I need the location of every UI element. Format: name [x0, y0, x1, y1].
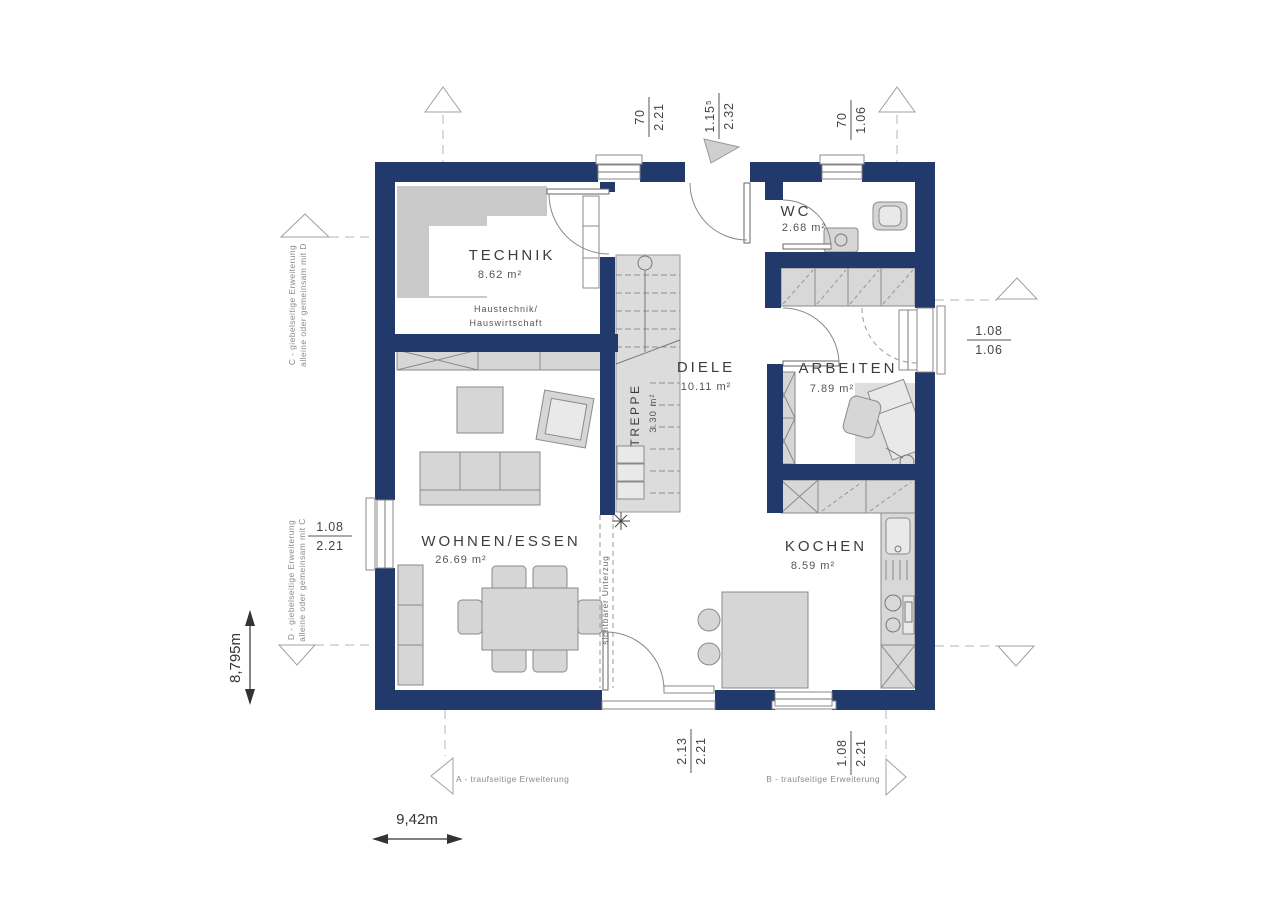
kitchen-island [698, 592, 808, 688]
armchair [536, 390, 594, 448]
room-label-diele: DIELE [677, 359, 735, 376]
extension-label-c-line1: C - giebelseitige Erweiterung [287, 245, 297, 365]
dining-chair [458, 600, 482, 634]
room-label-technik: TECHNIK [469, 247, 556, 264]
dimension-window-kochen: 1.08 2.21 [835, 731, 868, 775]
extension-label-a: A - traufseitige Erweiterung [456, 774, 569, 784]
svg-text:2.21: 2.21 [652, 103, 666, 131]
bar-stool [698, 643, 720, 665]
room-label-treppe: TREPPE [628, 383, 642, 446]
marker-triangle-top-right [879, 87, 915, 112]
svg-text:70: 70 [835, 112, 849, 128]
room-area-wc: 2.68 m² [782, 222, 826, 234]
kitchen-sink [886, 518, 910, 554]
marker-triangle-left-upper [281, 214, 329, 237]
dimension-window-technik: 70 2.21 [633, 97, 666, 137]
room-area-diele: 10.11 m² [681, 381, 732, 393]
staircase [616, 255, 680, 512]
dining-chair [533, 648, 567, 672]
terrace-door [602, 632, 715, 709]
shelf-cabinet [398, 565, 423, 685]
dining-chair [578, 600, 602, 634]
technik-shaded-zone [397, 186, 587, 298]
technik-cabinet [583, 196, 599, 288]
scale-width: 9,42m [372, 811, 463, 844]
room-label-arbeiten: ARBEITEN [798, 360, 897, 377]
extension-label-c-line2: alleine oder gemeinsam mit D [298, 243, 308, 367]
room-label-kochen: KOCHEN [785, 538, 867, 555]
window-technik [596, 155, 642, 179]
svg-text:1.08: 1.08 [835, 739, 849, 767]
svg-text:2.21: 2.21 [854, 739, 868, 767]
svg-text:1.06: 1.06 [975, 343, 1003, 357]
marker-triangle-left-lower [279, 645, 315, 665]
svg-text:1.08: 1.08 [316, 520, 344, 534]
svg-text:2.21: 2.21 [694, 737, 708, 765]
room-area-technik: 8.62 m² [478, 269, 522, 281]
svg-text:1.08: 1.08 [975, 324, 1003, 338]
beam-note-label: sichtbarer Unterzug [600, 555, 610, 644]
technik-note-line2: Hauswirtschaft [469, 318, 542, 328]
svg-text:1.15⁵: 1.15⁵ [703, 99, 717, 133]
marker-triangle-bottom-a [431, 758, 453, 794]
extension-label-d-line2: alleine oder gemeinsam mit C [297, 518, 307, 642]
dining-chair [492, 648, 526, 672]
scale-width-label: 9,42m [396, 811, 438, 828]
scale-height: 8,795m [227, 610, 255, 705]
window-arbeiten-right [899, 306, 945, 374]
dining-set [458, 566, 602, 672]
svg-text:2.13: 2.13 [675, 737, 689, 765]
arbeiten-door [783, 308, 917, 366]
marker-triangle-top-left [425, 87, 461, 112]
window-wc [820, 155, 864, 179]
bar-stool [698, 609, 720, 631]
room-area-treppe: 3.30 m² [648, 393, 659, 432]
svg-text:2.32: 2.32 [722, 102, 736, 130]
room-label-wc: WC [781, 203, 812, 220]
marker-triangle-right-lower [998, 646, 1034, 666]
extension-label-b: B - traufseitige Erweiterung [766, 774, 880, 784]
marker-triangle-right-upper [997, 278, 1037, 299]
wc-fixtures [824, 202, 907, 252]
room-area-kochen: 8.59 m² [791, 560, 835, 572]
living-room-furniture [397, 350, 603, 685]
toilet [873, 202, 907, 230]
floor-plan-drawing: TECHNIK 8.62 m² Haustechnik/ Hauswirtsch… [0, 0, 1280, 906]
marker-triangle-bottom-b [886, 759, 906, 795]
extension-label-d-line1: D - giebelseitige Erweiterung [286, 520, 296, 640]
entrance-door [690, 183, 750, 243]
window-kochen-bottom [772, 692, 836, 709]
dimension-window-wohnen: 1.08 2.21 [308, 520, 352, 553]
window-wohnen-left [366, 498, 393, 570]
dining-chair [492, 566, 526, 590]
entrance-arrow-icon [704, 139, 739, 163]
scale-height-label: 8,795m [227, 633, 244, 683]
dimension-window-wc: 70 1.06 [835, 100, 868, 140]
understair-shelf [617, 446, 644, 463]
coffee-table [457, 387, 503, 433]
dimension-entrance: 1.15⁵ 2.32 [703, 93, 736, 139]
hall-closet-row [781, 268, 915, 306]
room-area-arbeiten: 7.89 m² [810, 383, 854, 395]
sofa [420, 452, 540, 505]
dining-chair [533, 566, 567, 590]
svg-text:1.06: 1.06 [854, 106, 868, 134]
understair-shelf [617, 464, 644, 481]
svg-text:2.21: 2.21 [316, 539, 344, 553]
room-label-wohnen: WOHNEN/ESSEN [421, 533, 580, 550]
understair-shelf [617, 482, 644, 499]
dimension-window-arbeiten: 1.08 1.06 [967, 324, 1011, 357]
room-area-wohnen: 26.69 m² [435, 554, 486, 566]
svg-text:70: 70 [633, 109, 647, 125]
sideboard [397, 350, 603, 370]
floor-plan-page: TECHNIK 8.62 m² Haustechnik/ Hauswirtsch… [0, 0, 1280, 906]
technik-note-line1: Haustechnik/ [474, 304, 538, 314]
dimension-terrace-door: 2.13 2.21 [675, 729, 708, 773]
dining-table [482, 588, 578, 650]
